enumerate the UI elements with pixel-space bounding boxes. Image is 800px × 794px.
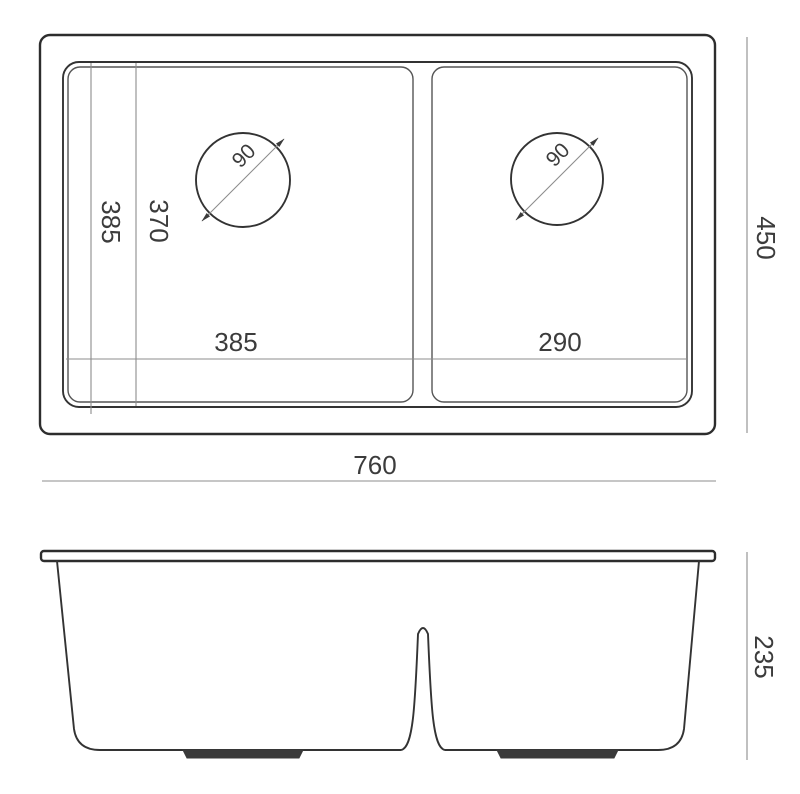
profile-right-foot-pad: [497, 750, 618, 758]
overall-depth-label: 450: [751, 216, 781, 259]
overall-height-label: 235: [749, 635, 779, 678]
bowl-front-to-back-label: 385: [96, 200, 126, 243]
profile-body-outline: [57, 561, 699, 750]
right-bowl-width-label: 290: [538, 327, 581, 357]
left-bowl-width-label: 385: [214, 327, 257, 357]
profile-rim-bar: [41, 551, 715, 561]
side-view: 235: [41, 551, 779, 760]
bowl-inner-front-to-back-label: 370: [144, 199, 174, 242]
profile-left-foot-pad: [183, 750, 303, 758]
plan-outer-rim-outline: [40, 35, 715, 434]
top-view: 90 90 385 370 385 290 450 760: [40, 35, 781, 481]
sink-technical-drawing-page: 90 90 385 370 385 290 450 760: [0, 0, 800, 794]
technical-drawing-canvas: 90 90 385 370 385 290 450 760: [0, 0, 800, 794]
overall-width-label: 760: [353, 450, 396, 480]
